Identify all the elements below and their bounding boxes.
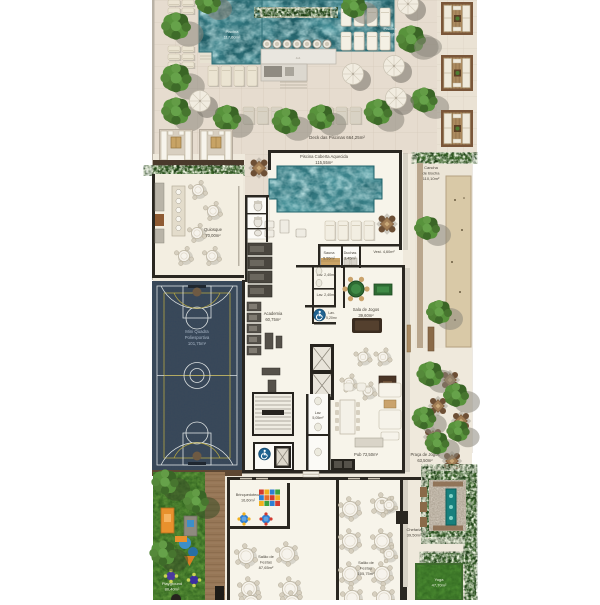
svg-text:Sauna5,55m²: Sauna5,55m² bbox=[323, 251, 336, 260]
svg-text:Chefaria39,50m²: Chefaria39,50m² bbox=[406, 527, 422, 538]
svg-text:Academia60,75m²: Academia60,75m² bbox=[264, 311, 283, 322]
svg-text:Quiosque70,00m²: Quiosque70,00m² bbox=[204, 227, 223, 238]
svg-text:Canchade Bocha110,10m²: Canchade Bocha110,10m² bbox=[423, 165, 441, 181]
svg-text:A A: A A bbox=[296, 56, 301, 60]
svg-text:Pub 72,50m²: Pub 72,50m² bbox=[354, 452, 379, 457]
svg-text:Duchas3,45m²: Duchas3,45m² bbox=[344, 251, 357, 260]
svg-text:PiscinaInfantil: PiscinaInfantil bbox=[384, 26, 398, 37]
svg-text:Piscina117,60m²: Piscina117,60m² bbox=[224, 29, 241, 40]
svg-text:Vest. 4,60m²: Vest. 4,60m² bbox=[373, 250, 395, 254]
svg-text:Playground80,40m²: Playground80,40m² bbox=[162, 581, 182, 592]
svg-text:Lav. 2,40m²: Lav. 2,40m² bbox=[317, 293, 337, 297]
svg-text:Deck das Piscinas 664,25m²: Deck das Piscinas 664,25m² bbox=[309, 135, 365, 140]
